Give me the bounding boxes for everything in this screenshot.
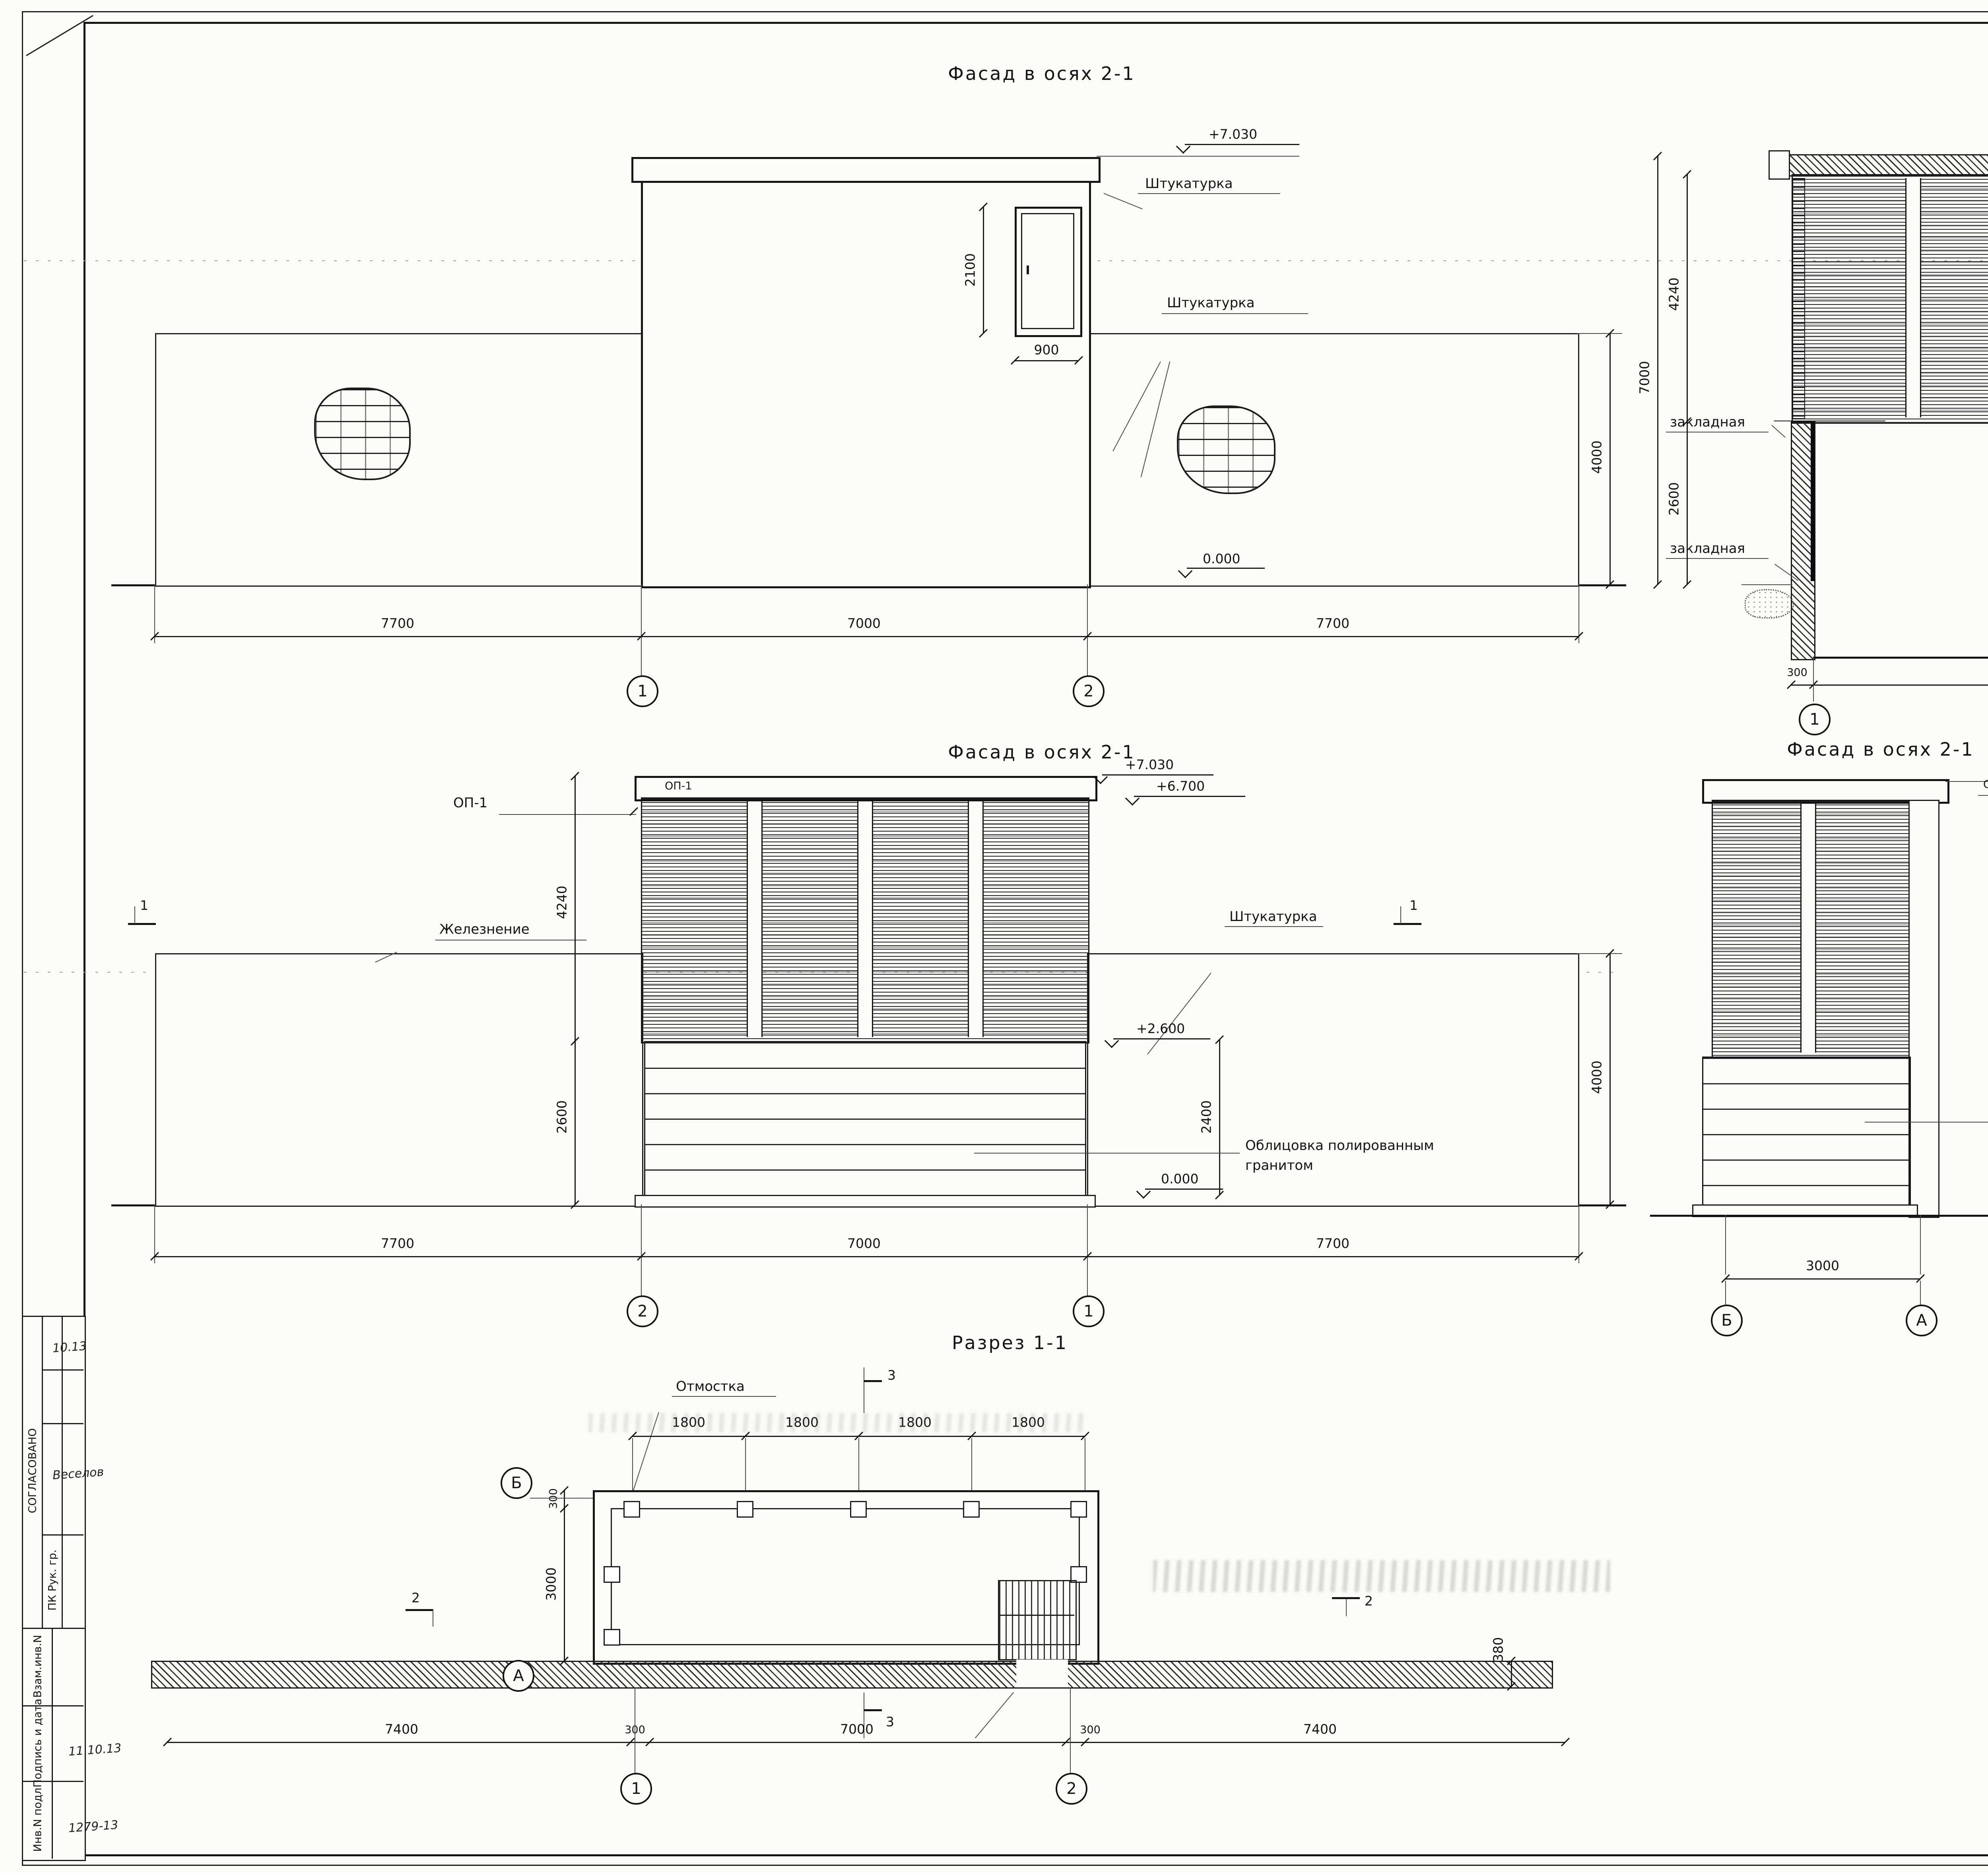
- axis-label: 2: [1083, 682, 1093, 700]
- dim-380: 380: [1491, 1637, 1506, 1662]
- louver-mullion: [747, 801, 763, 1037]
- dim-7700: 7700: [381, 616, 414, 631]
- axis-label: 2: [637, 1302, 647, 1320]
- section-mark-1: 1: [140, 898, 148, 913]
- elevation-6700: +6.700: [1156, 778, 1205, 794]
- door-handle: [1027, 266, 1029, 274]
- pilaster: [604, 1566, 620, 1583]
- dim-7700: 7700: [1316, 616, 1349, 631]
- dim-300: 300: [1080, 1724, 1101, 1736]
- axis-circle-1: 1: [620, 1773, 652, 1805]
- ground-line: [1741, 584, 1792, 585]
- axis-circle-1: 1: [1799, 704, 1831, 735]
- inv-label: Инв.N подл: [32, 1788, 44, 1852]
- pilaster: [604, 1629, 620, 1646]
- granite-label: гранитом: [1245, 1158, 1313, 1173]
- granite-base: [644, 1041, 1086, 1197]
- elevation-2600: +2.600: [1136, 1021, 1185, 1036]
- dim-2100: 2100: [963, 253, 978, 287]
- foundation-bottom-line: [1813, 657, 1988, 659]
- axis-circle-B: Б: [1711, 1305, 1743, 1336]
- dim-line: [1015, 360, 1078, 361]
- axis-circle-2: 2: [627, 1295, 658, 1327]
- dim-2400: 2400: [1199, 1100, 1214, 1134]
- door-leaf: [1021, 213, 1074, 329]
- louver-mullion: [1800, 804, 1816, 1053]
- faded-stamp-mark: [588, 1413, 1085, 1432]
- louver-wall-section: [1792, 174, 1988, 424]
- axis-circle-2: 2: [1056, 1773, 1087, 1805]
- pilaster: [623, 1501, 640, 1518]
- parapet-cap: [631, 157, 1101, 183]
- axis-label: Б: [511, 1474, 522, 1492]
- dim-3000: 3000: [544, 1567, 559, 1601]
- plinth: [635, 1195, 1096, 1208]
- plaster-label: Штукатурка: [1229, 909, 1317, 925]
- level-2600-line: [1774, 421, 1885, 421]
- axis-label: 1: [1809, 710, 1819, 729]
- section-mark-2: 2: [412, 1590, 420, 1605]
- axis-circle-A: А: [1906, 1305, 1938, 1336]
- section-mark-3: 3: [887, 1367, 896, 1383]
- ground-band: [151, 1661, 1553, 1689]
- dim-4240: 4240: [554, 886, 570, 919]
- dim-7000: 7000: [847, 616, 881, 631]
- dim-2600: 2600: [1666, 482, 1682, 516]
- section-mark-1: 1: [1409, 898, 1418, 913]
- dim-4000: 4000: [1589, 1061, 1605, 1094]
- granite-label: Облицовка полированным: [1245, 1138, 1434, 1154]
- ground-line: [1650, 1215, 1988, 1217]
- pilaster: [850, 1501, 867, 1518]
- dim-2600: 2600: [554, 1100, 570, 1134]
- view1-title: Фасад в осях 2-1: [948, 63, 1136, 84]
- roof-end-block: [1769, 150, 1790, 180]
- pilaster: [737, 1501, 753, 1518]
- dim-7700: 7700: [381, 1236, 414, 1251]
- dim-300: 300: [547, 1488, 560, 1509]
- op1-label: ОП-1: [1983, 778, 1988, 791]
- pilaster: [963, 1501, 980, 1518]
- axis-label: Б: [1721, 1311, 1732, 1330]
- axis-label: 1: [631, 1780, 641, 1798]
- section-mark-3: 3: [886, 1714, 894, 1730]
- left-wall: [155, 953, 643, 1207]
- blind-area-label: Отмостка: [676, 1379, 745, 1394]
- axis-circle-1: 1: [1073, 1295, 1105, 1327]
- elevation-7030: +7.030: [1125, 757, 1174, 772]
- elevation-7030: +7.030: [1209, 126, 1257, 142]
- section-mark-2: 2: [1365, 1593, 1373, 1609]
- op1-label: ОП-1: [665, 780, 692, 792]
- view4-title: Фасад в осях 2-1: [1787, 739, 1974, 760]
- view3-title: Фасад в осях 2-1: [948, 741, 1136, 763]
- dim-7700: 7700: [1316, 1236, 1349, 1251]
- axis-label: 1: [1083, 1302, 1093, 1320]
- axis-circle-A: А: [503, 1660, 534, 1692]
- approver-role: ПК Рук. гр.: [47, 1549, 59, 1611]
- faded-stamp-mark: [1153, 1560, 1610, 1592]
- right-wall: [1087, 953, 1579, 1207]
- dim-7000: 7000: [840, 1722, 874, 1737]
- dim-300: 300: [1787, 667, 1807, 679]
- podpis-label: Подпись и дата: [32, 1698, 44, 1788]
- agreed-label: СОГЛАСОВАНО: [27, 1428, 39, 1513]
- foundation-concrete: [1745, 589, 1794, 619]
- iron-label: Железнение: [439, 921, 530, 937]
- louver-mullion: [968, 801, 984, 1037]
- dim-7400: 7400: [1303, 1722, 1337, 1737]
- view6-title: Разрез 1-1: [952, 1332, 1068, 1353]
- dim-3000: 3000: [1806, 1258, 1839, 1274]
- dim-4240: 4240: [1666, 277, 1682, 311]
- elevation-0: 0.000: [1161, 1171, 1198, 1187]
- op1-label: ОП-1: [453, 795, 487, 811]
- ventilation-grille-plan: [998, 1580, 1077, 1660]
- axis-circle-1: 1: [627, 675, 658, 707]
- blueprint-sheet: Фасад в осях 2-1 2100 900 +7.030 Штукату…: [0, 0, 1988, 1873]
- axis-label: А: [1916, 1311, 1927, 1330]
- axis-label: 2: [1066, 1780, 1076, 1798]
- dim-900: 900: [1034, 342, 1059, 358]
- approver-date: 10.13: [52, 1339, 87, 1355]
- return-pillar: [1908, 800, 1939, 1218]
- plaster-label: Штукатурка: [1145, 176, 1233, 192]
- plaster-label: Штукатурка: [1167, 295, 1255, 311]
- louver-mullion: [1905, 178, 1921, 417]
- vzam-label: Взам.инв.N: [32, 1635, 44, 1698]
- louver-mullion: [857, 801, 873, 1037]
- pilaster: [1070, 1501, 1087, 1518]
- granite-base: [1702, 1057, 1911, 1207]
- axis-label: А: [513, 1667, 524, 1685]
- elevation-0: 0.000: [1203, 551, 1240, 566]
- band-opening: [1016, 1660, 1068, 1687]
- dim-7400: 7400: [385, 1722, 418, 1737]
- louver-frame-teeth: [1792, 178, 1805, 419]
- roof-slab-section: [1780, 154, 1988, 176]
- dim-line: [983, 207, 984, 333]
- dim-4000: 4000: [1589, 440, 1605, 474]
- axis-circle-B: Б: [501, 1467, 532, 1499]
- embed-label: закладная: [1670, 414, 1745, 430]
- embed-label: закладная: [1670, 541, 1745, 556]
- right-wall: [1087, 333, 1579, 587]
- dim-7000: 7000: [847, 1236, 881, 1251]
- axis-label: 1: [637, 682, 647, 700]
- dim-7000: 7000: [1637, 361, 1652, 394]
- axis-circle-2: 2: [1073, 675, 1105, 707]
